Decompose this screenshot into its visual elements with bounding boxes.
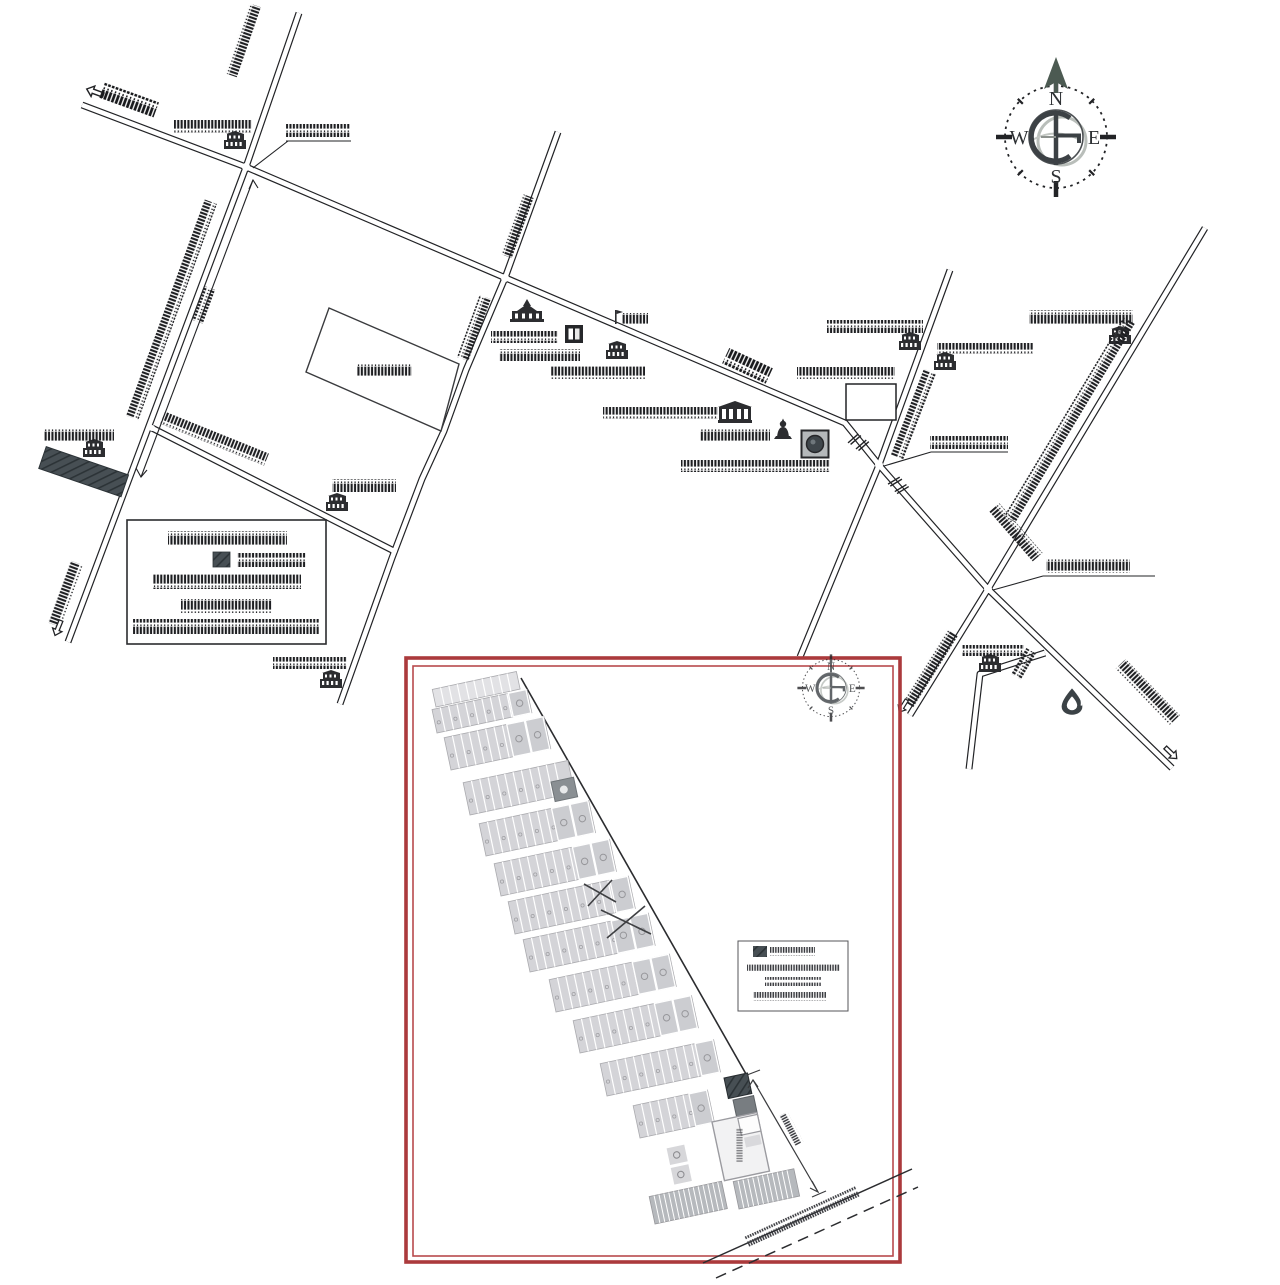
svg-text:W: W: [805, 683, 816, 695]
svg-text:S: S: [1050, 166, 1061, 188]
svg-text:W: W: [1010, 127, 1029, 149]
svg-text:E: E: [1088, 127, 1100, 149]
svg-text:E: E: [849, 683, 856, 695]
svg-text:S: S: [828, 705, 834, 717]
